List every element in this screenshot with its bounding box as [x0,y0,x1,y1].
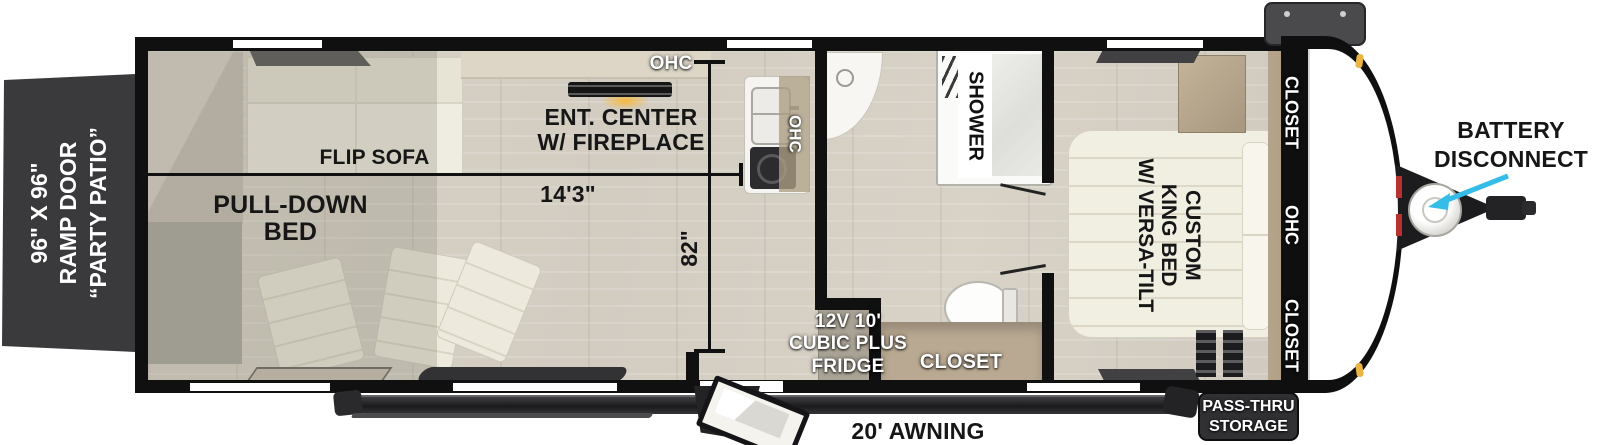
height-dimension-tick-bottom [694,349,725,353]
window [190,383,330,391]
battery-disconnect-label: BATTERY DISCONNECT [1425,116,1597,174]
ent-center-label: ENT. CENTER W/ FIREPLACE [536,105,706,155]
width-dimension-line [143,173,742,176]
nightstand [1178,55,1246,133]
bathroom-right-wall-upper [1042,50,1054,183]
front-closet-top-label: CLOSET [1281,76,1302,149]
ramp-door-label: 96" X 96" RAMP DOOR “PARTY PATIO” [25,127,113,299]
rear-wall [135,37,148,393]
pass-thru-storage-label: PASS-THRU STORAGE [1202,397,1294,435]
floorplan-diagram: 96" X 96" RAMP DOOR “PARTY PATIO” OHC [0,0,1600,445]
window [233,40,322,48]
bedroom-steps [1196,330,1244,377]
height-dimension-line [708,61,711,352]
height-dimension-label: 82" [676,230,703,267]
front-closet-bottom-label: CLOSET [1281,299,1302,372]
height-dimension-tick-top [694,60,725,64]
pass-thru-storage-badge: PASS-THRU STORAGE [1198,392,1299,441]
hitch-reflector [1396,176,1402,198]
window [453,383,617,391]
fridge-label: 12V 10' CUBIC PLUS FRIDGE [778,311,918,378]
bedroom-window-shade-top [1096,51,1200,63]
living-ohc-label: OHC [646,54,696,75]
shower-label: SHOWER [964,71,987,161]
window [1107,40,1203,48]
width-dimension-label: 14'3" [528,182,608,207]
window [727,40,812,48]
shower-glass [984,54,1046,176]
bathroom-right-wall-lower [1042,273,1054,383]
king-bed-label: CUSTOM KING BED W/ VERSA-TILT [1076,148,1262,322]
front-ohc-label: OHC [1281,205,1302,245]
shower: SHOWER [936,48,1052,186]
window [1027,383,1140,391]
width-dimension-tick-left [141,161,145,188]
hitch-reflector [1396,214,1402,236]
kitchen-ohc-overlay: OHC [779,76,810,192]
flip-sofa-label: FLIP SOFA [302,147,447,170]
awning-bracket-right [1162,385,1200,418]
kitchen-ohc-label: OHC [785,115,805,153]
pull-down-bed-label: PULL-DOWN BED [213,192,368,246]
awning-arm [351,413,654,418]
fireplace-icon [568,82,672,97]
awning-label: 20' AWNING [838,419,998,444]
width-dimension-tick-right [739,163,743,186]
ramp-door-party-patio: 96" X 96" RAMP DOOR “PARTY PATIO” [2,72,136,354]
bathroom-left-wall [815,50,827,302]
